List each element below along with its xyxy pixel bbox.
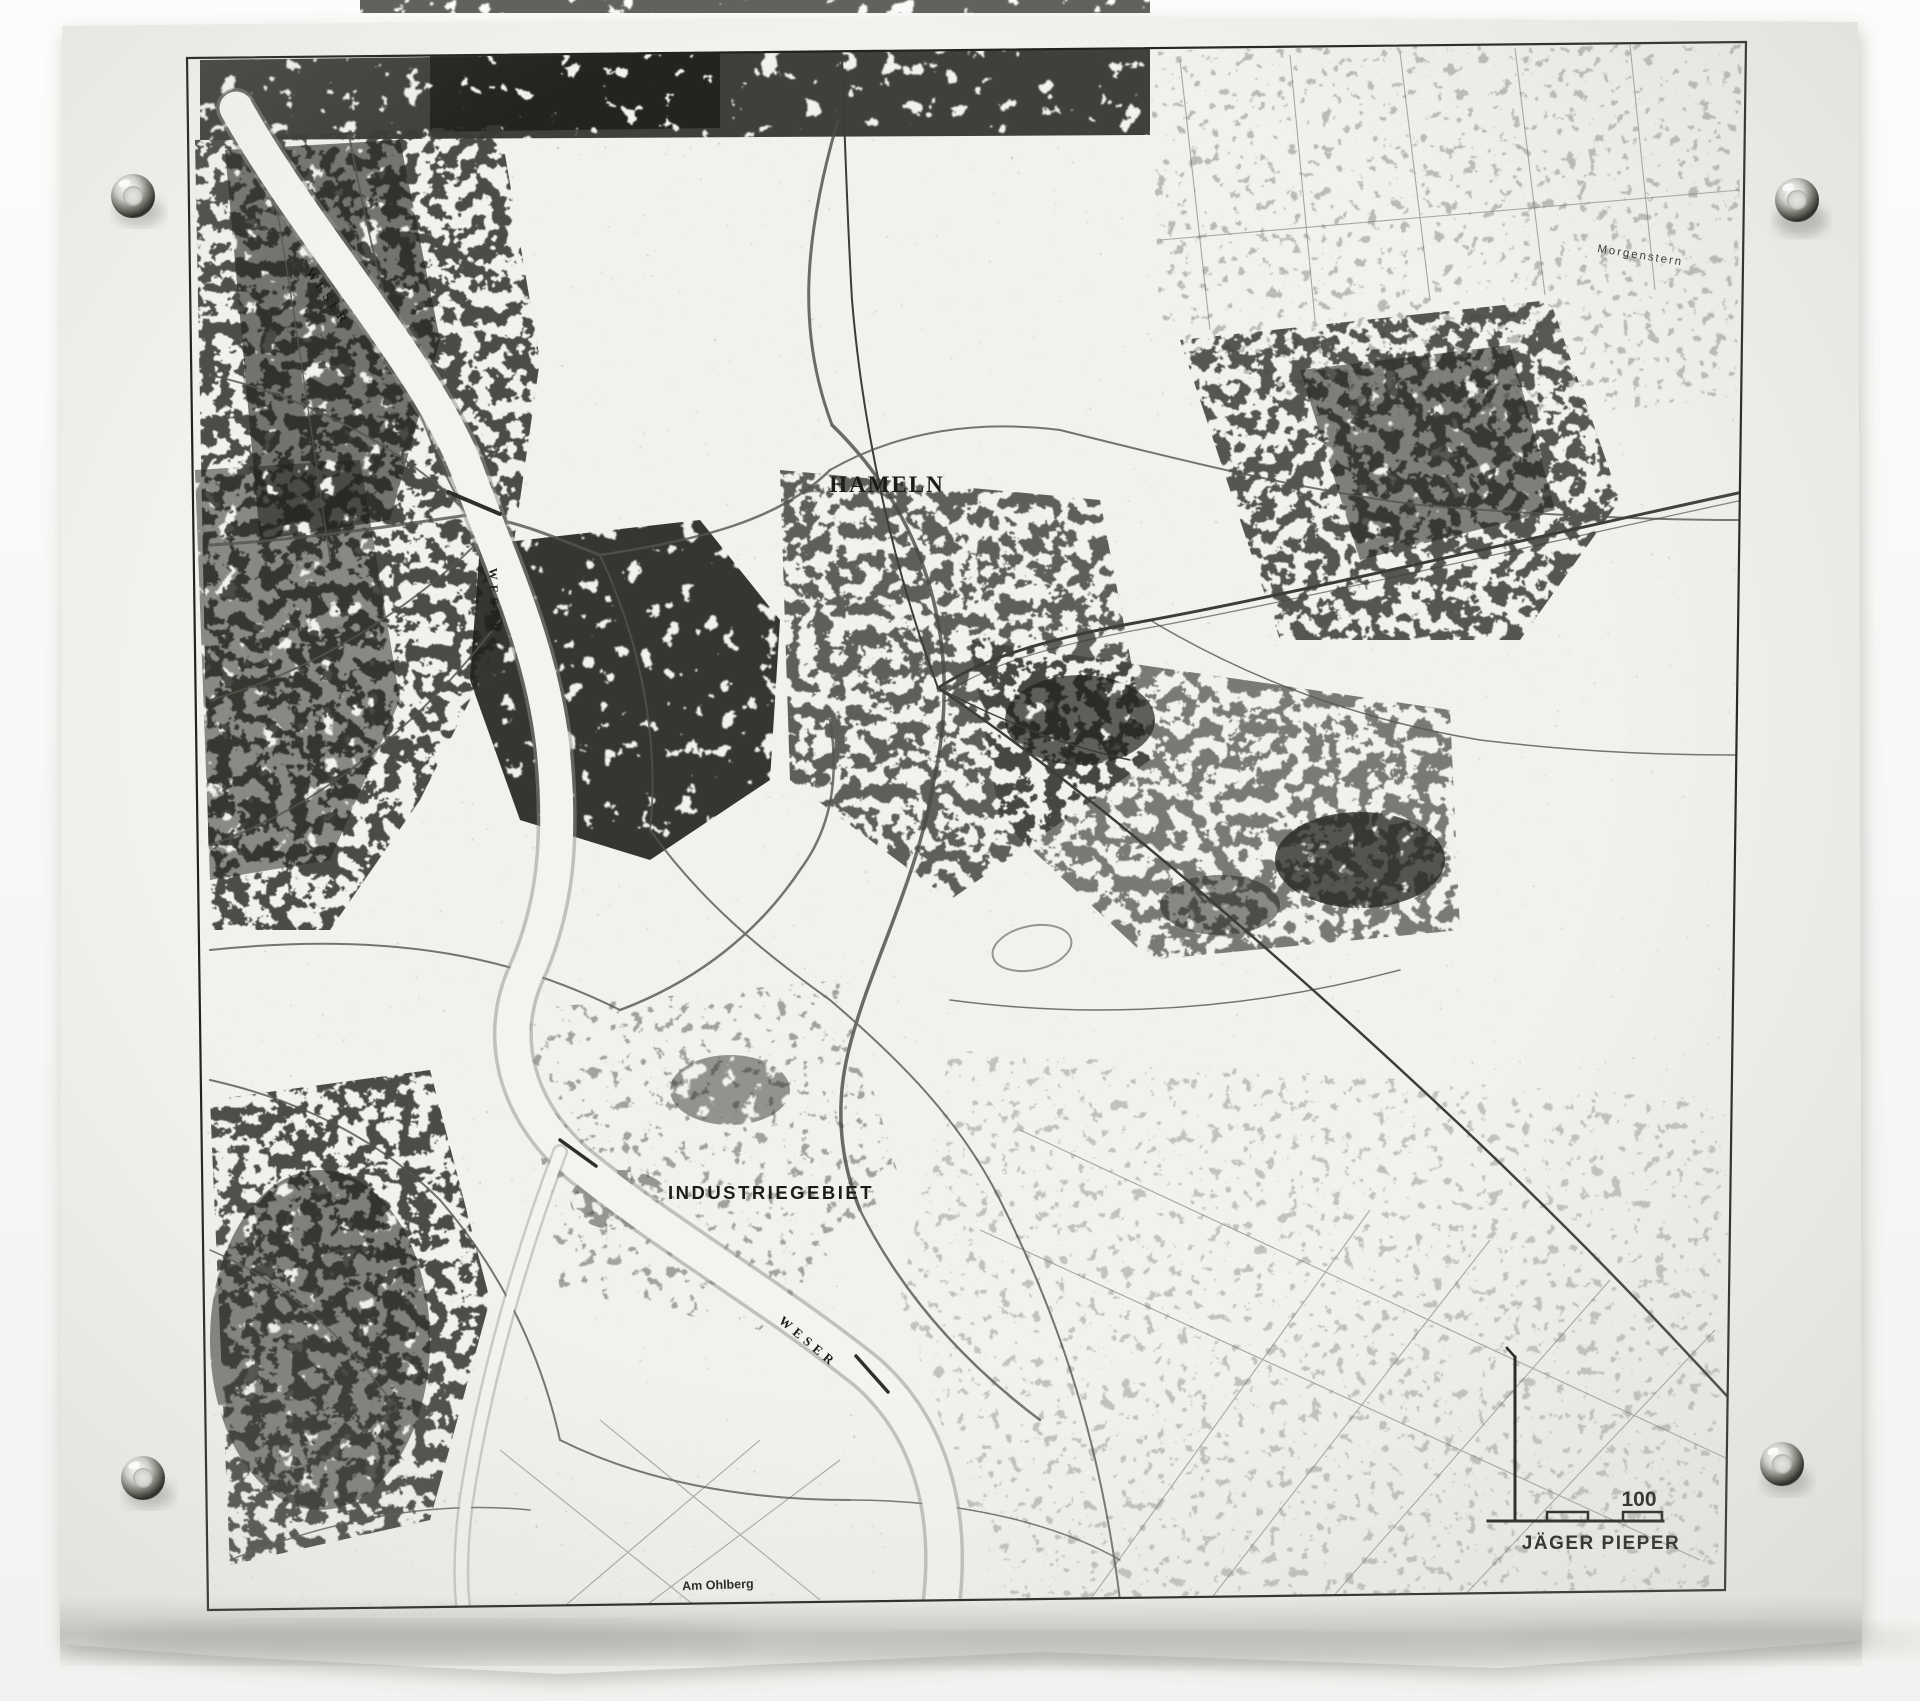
photo-map-artwork: HAMELN INDUSTRIEGEBIET WESER WESER WESER… xyxy=(0,0,1920,1701)
map-texture-overflow xyxy=(360,0,1150,13)
photo-vignette xyxy=(60,16,1862,1674)
